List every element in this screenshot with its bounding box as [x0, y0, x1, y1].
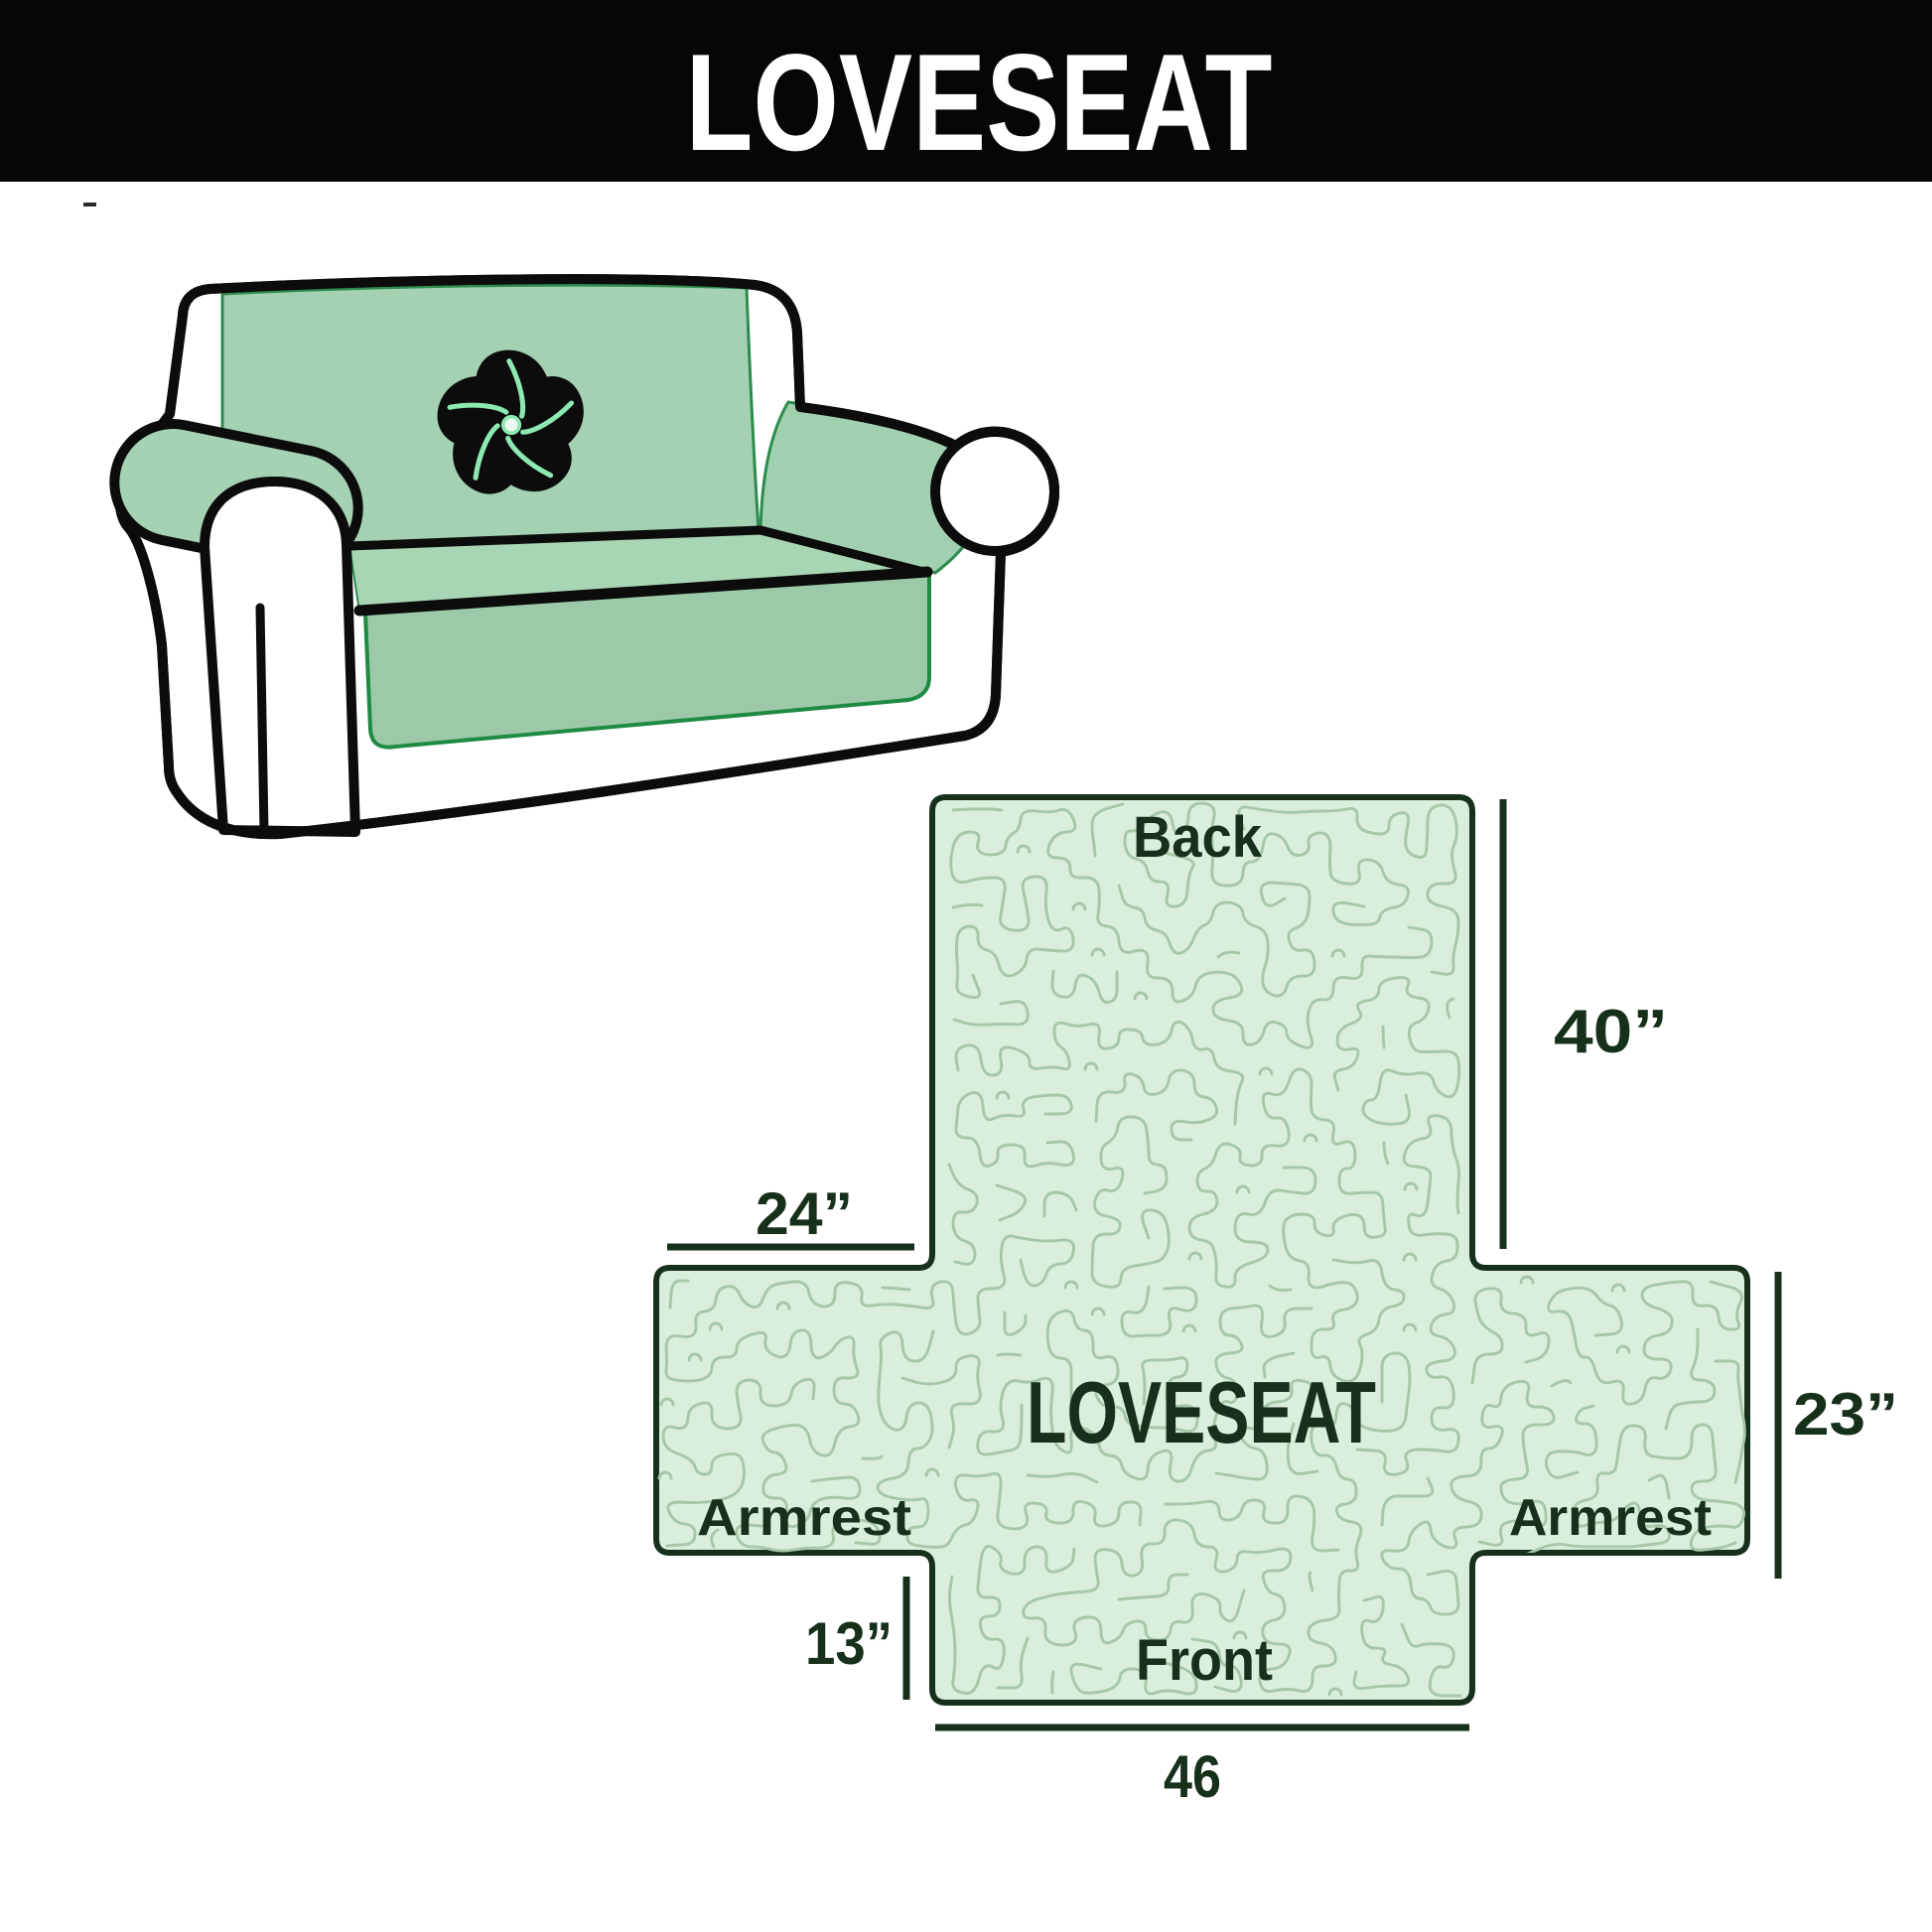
svg-text:40”: 40”: [1554, 998, 1668, 1066]
svg-text:LOVESEAT: LOVESEAT: [1027, 1363, 1376, 1461]
svg-text:Armrest: Armrest: [697, 1489, 911, 1547]
svg-text:Back: Back: [1133, 805, 1263, 870]
svg-text:46: 46: [1164, 1743, 1221, 1810]
svg-text:Armrest: Armrest: [1509, 1489, 1712, 1547]
svg-text:LOVESEAT: LOVESEAT: [686, 26, 1273, 180]
svg-text:24”: 24”: [756, 1180, 853, 1247]
svg-text:23”: 23”: [1793, 1381, 1898, 1448]
svg-text:13”: 13”: [805, 1610, 893, 1677]
svg-text:Front: Front: [1136, 1628, 1273, 1693]
